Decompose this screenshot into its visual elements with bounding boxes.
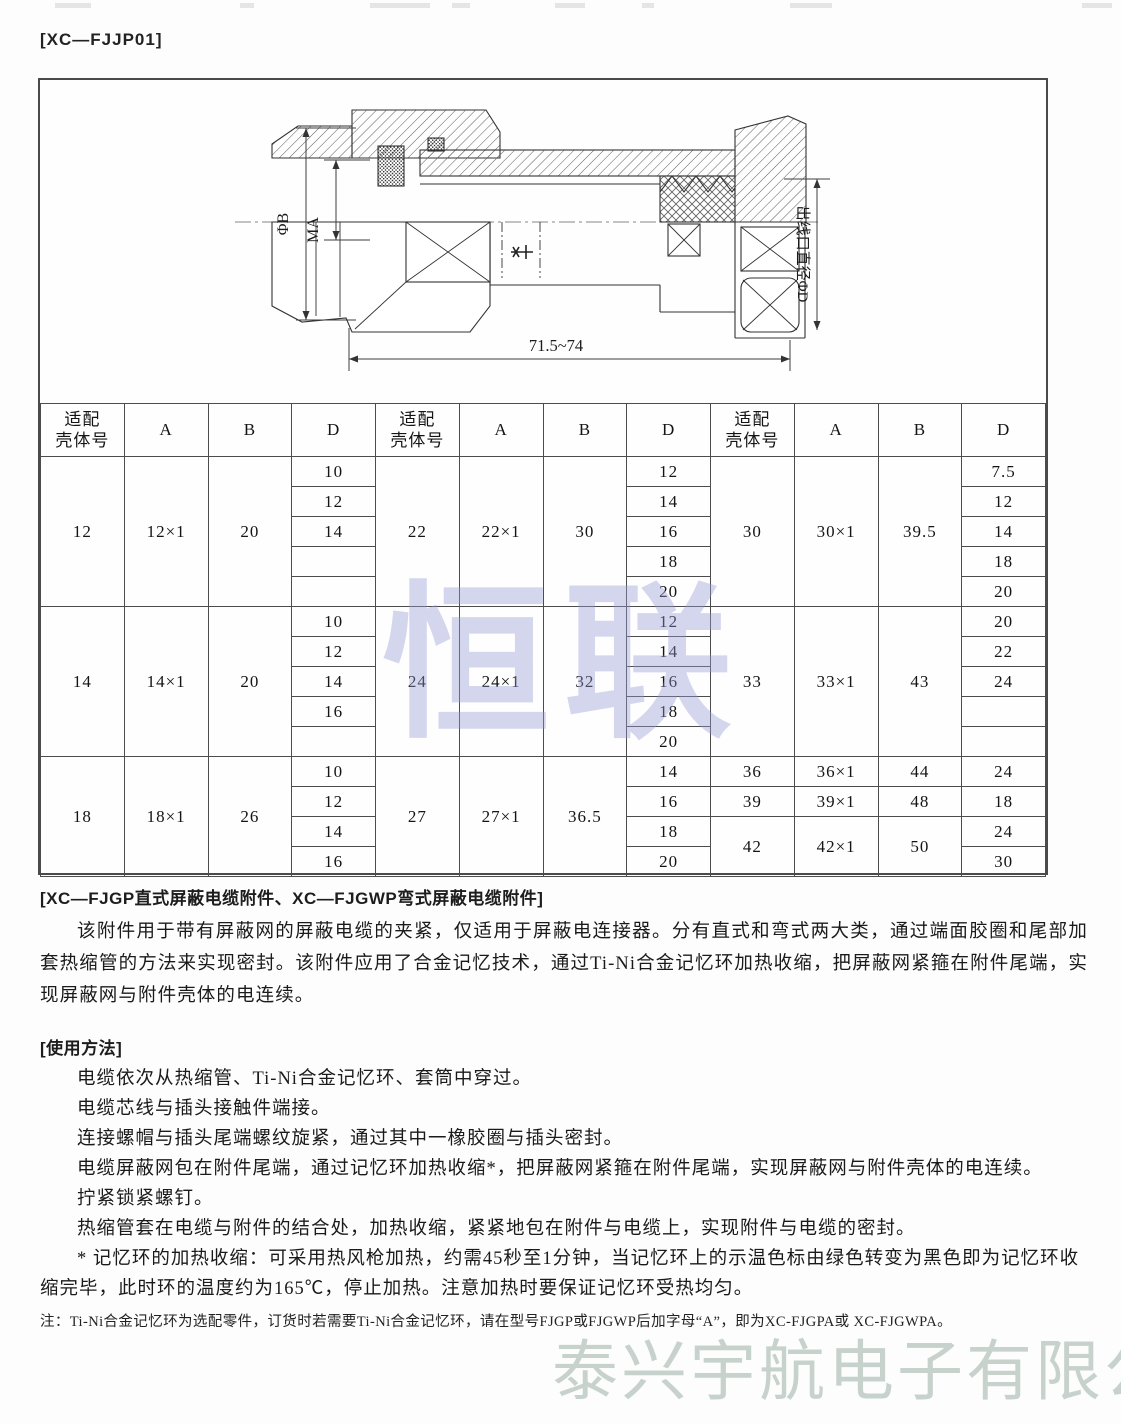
table-cell: 36 [711, 757, 795, 787]
dim-label-phi-b: ΦB [275, 213, 292, 235]
table-cell: 16 [627, 517, 711, 547]
attachment-paragraph: 该附件用于带有屏蔽网的屏蔽电缆的夹紧，仅适用于屏蔽电连接器。分有直式和弯式两大类… [40, 916, 1088, 1012]
ordering-note: 注：Ti-Ni合金记忆环为选配零件，订货时若需要Ti-Ni合金记忆环，请在型号F… [40, 1311, 1100, 1333]
table-cell: 22×1 [459, 457, 543, 607]
scan-artifact [790, 3, 832, 8]
table-cell [962, 697, 1046, 727]
table-row: 1818×126102727×136.5143636×14424 [41, 757, 1046, 787]
table-cell: 36.5 [543, 757, 627, 877]
table-cell: 14 [962, 517, 1046, 547]
table-cell: 39×1 [794, 787, 878, 817]
table-cell: 32 [543, 607, 627, 757]
spec-table-body: 1212×120102222×130123030×139.57.51214121… [41, 457, 1046, 877]
table-header-cell: A [459, 404, 543, 457]
table-cell: 39 [711, 787, 795, 817]
table-cell: 14 [292, 667, 376, 697]
table-cell: 30×1 [794, 457, 878, 607]
table-cell: 18 [962, 787, 1046, 817]
table-cell: 12 [41, 457, 125, 607]
scan-artifact [1082, 3, 1112, 8]
table-cell: 14 [292, 517, 376, 547]
scan-artifact [555, 3, 585, 8]
table-cell: 16 [627, 667, 711, 697]
table-cell: 12 [962, 487, 1046, 517]
table-cell: 20 [962, 607, 1046, 637]
table-cell: 27 [376, 757, 460, 877]
usage-line: 电缆依次从热缩管、Ti-Ni合金记忆环、套筒中穿过。 [40, 1064, 1090, 1094]
table-cell: 12 [292, 637, 376, 667]
table-cell: 43 [878, 607, 962, 757]
table-cell: 14 [627, 757, 711, 787]
table-cell: 42×1 [794, 817, 878, 877]
spec-table-head: 适配 壳体号ABD适配 壳体号ABD适配 壳体号ABD [41, 404, 1046, 457]
connector-diagram: ΦB MA 出线口直径ΦD 71.5~74 [40, 80, 1046, 403]
table-header-cell: D [292, 404, 376, 457]
table-cell: 18 [962, 547, 1046, 577]
table-cell: 44 [878, 757, 962, 787]
table-cell: 24 [962, 817, 1046, 847]
table-cell: 20 [962, 577, 1046, 607]
table-cell: 22 [962, 637, 1046, 667]
table-cell: 20 [627, 727, 711, 757]
rotated-inner-mark-icon [511, 245, 533, 259]
scan-artifact [452, 3, 470, 8]
table-cell: 16 [292, 847, 376, 877]
table-header-cell: D [627, 404, 711, 457]
table-header-cell: 适配 壳体号 [711, 404, 795, 457]
table-cell: 30 [543, 457, 627, 607]
usage-line: 电缆芯线与插头接触件端接。 [40, 1094, 1090, 1124]
dim-label-overall-length: 71.5~74 [529, 336, 583, 355]
table-cell: 14×1 [124, 607, 208, 757]
table-cell: 10 [292, 757, 376, 787]
table-cell: 10 [292, 607, 376, 637]
table-cell: 24 [376, 607, 460, 757]
footer-company-watermark: 泰兴宇航电子有限公司 [552, 1340, 1121, 1406]
table-cell: 14 [627, 487, 711, 517]
table-header-cell: D [962, 404, 1046, 457]
table-cell: 39.5 [878, 457, 962, 607]
scan-artifact [240, 3, 254, 8]
table-header-cell: A [794, 404, 878, 457]
table-cell: 12 [627, 457, 711, 487]
scan-artifact [370, 3, 430, 8]
table-cell: 12 [627, 607, 711, 637]
table-row: 1414×120102424×132123333×14320 [41, 607, 1046, 637]
table-header-cell: B [878, 404, 962, 457]
figure-and-table-frame: ΦB MA 出线口直径ΦD 71.5~74 适配 壳体号ABD适配 壳体号ABD… [38, 78, 1048, 875]
table-cell: 16 [627, 787, 711, 817]
usage-line: 热缩管套在电缆与附件的结合处，加热收缩，紧紧地包在附件与电缆上，实现附件与电缆的… [40, 1214, 1090, 1244]
table-header-cell: 适配 壳体号 [41, 404, 125, 457]
table-cell: 33×1 [794, 607, 878, 757]
table-cell: 18 [627, 817, 711, 847]
table-cell: 18 [627, 697, 711, 727]
table-header-cell: B [543, 404, 627, 457]
table-cell: 20 [627, 847, 711, 877]
usage-line: 拧紧锁紧螺钉。 [40, 1184, 1090, 1214]
table-cell: 12 [292, 487, 376, 517]
table-cell: 24 [962, 757, 1046, 787]
connector-technical-drawing: ΦB MA 出线口直径ΦD 71.5~74 [40, 80, 1046, 403]
dim-label-ma: MA [305, 217, 322, 243]
table-cell: 7.5 [962, 457, 1046, 487]
table-cell: 14 [292, 817, 376, 847]
table-cell: 24×1 [459, 607, 543, 757]
spec-table: 适配 壳体号ABD适配 壳体号ABD适配 壳体号ABD 1212×1201022… [40, 403, 1046, 877]
scan-artifact [642, 3, 654, 8]
table-cell: 18×1 [124, 757, 208, 877]
table-cell: 20 [208, 607, 292, 757]
table-cell: 10 [292, 457, 376, 487]
scan-artifact [55, 3, 91, 8]
table-cell: 50 [878, 817, 962, 877]
table-cell: 36×1 [794, 757, 878, 787]
table-row: 1212×120102222×130123030×139.57.5 [41, 457, 1046, 487]
usage-line: 电缆屏蔽网包在附件尾端，通过记忆环加热收缩*，把屏蔽网紧箍在附件尾端，实现屏蔽网… [40, 1154, 1090, 1184]
table-cell: 26 [208, 757, 292, 877]
table-cell: 22 [376, 457, 460, 607]
page-model-label: [XC—FJJP01] [40, 30, 162, 50]
table-cell [292, 577, 376, 607]
table-cell: 12 [292, 787, 376, 817]
usage-line: 连接螺帽与插头尾端螺纹旋紧，通过其中一橡胶圈与插头密封。 [40, 1124, 1090, 1154]
table-cell: 30 [962, 847, 1046, 877]
table-cell [962, 727, 1046, 757]
table-cell [292, 727, 376, 757]
table-cell: 27×1 [459, 757, 543, 877]
table-cell: 18 [627, 547, 711, 577]
table-cell: 14 [627, 637, 711, 667]
table-header-cell: 适配 壳体号 [376, 404, 460, 457]
usage-section-title: [使用方法] [40, 1034, 122, 1059]
table-cell: 24 [962, 667, 1046, 697]
table-header-cell: A [124, 404, 208, 457]
table-cell: 20 [208, 457, 292, 607]
usage-line: * 记忆环的加热收缩：可采用热风枪加热，约需45秒至1分钟，当记忆环上的示温色标… [40, 1244, 1090, 1304]
table-cell: 33 [711, 607, 795, 757]
connector-body [272, 110, 806, 338]
attachment-section-title: [XC—FJGP直式屏蔽电缆附件、XC—FJGWP弯式屏蔽电缆附件] [40, 884, 543, 909]
table-cell: 48 [878, 787, 962, 817]
table-cell: 12×1 [124, 457, 208, 607]
table-cell: 18 [41, 757, 125, 877]
table-cell: 42 [711, 817, 795, 877]
document-page: [XC—FJJP01] [0, 0, 1121, 1424]
table-cell: 20 [627, 577, 711, 607]
table-cell: 30 [711, 457, 795, 607]
table-cell: 14 [41, 607, 125, 757]
table-header-cell: B [208, 404, 292, 457]
table-cell: 16 [292, 697, 376, 727]
usage-instructions: 电缆依次从热缩管、Ti-Ni合金记忆环、套筒中穿过。电缆芯线与插头接触件端接。连… [40, 1064, 1090, 1304]
dim-label-outlet-diameter: 出线口直径ΦD [794, 206, 811, 303]
table-cell [292, 547, 376, 577]
